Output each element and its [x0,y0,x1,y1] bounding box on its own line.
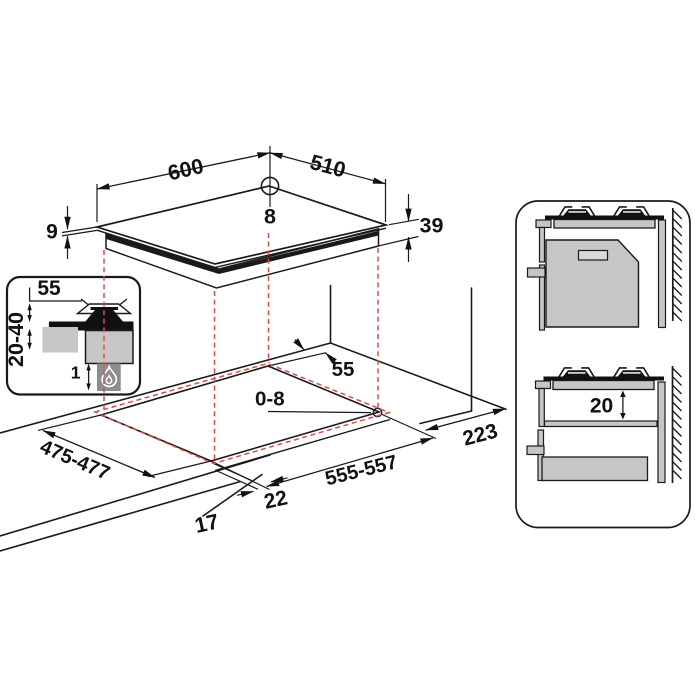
svg-text:55: 55 [37,277,61,300]
svg-text:0-8: 0-8 [255,388,285,411]
svg-text:20: 20 [590,395,613,418]
svg-text:20-40: 20-40 [4,312,28,367]
svg-text:17: 17 [193,509,221,537]
svg-text:9: 9 [46,221,58,244]
svg-text:55: 55 [332,358,355,381]
svg-text:1: 1 [71,363,81,383]
svg-text:8: 8 [264,205,276,229]
svg-text:39: 39 [420,214,444,238]
svg-text:22: 22 [262,486,290,513]
